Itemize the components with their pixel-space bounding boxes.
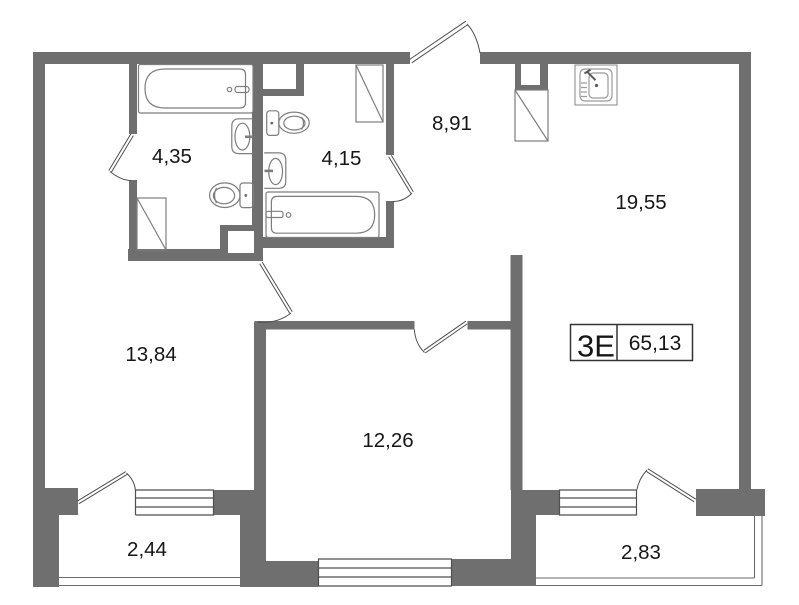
svg-text:2,83: 2,83 bbox=[621, 541, 661, 564]
svg-text:3Е: 3Е bbox=[577, 329, 615, 364]
svg-text:13,84: 13,84 bbox=[125, 343, 176, 366]
svg-text:8,91: 8,91 bbox=[432, 112, 472, 135]
svg-text:12,26: 12,26 bbox=[362, 429, 413, 452]
svg-text:4,15: 4,15 bbox=[322, 147, 362, 170]
svg-text:2,44: 2,44 bbox=[127, 538, 167, 561]
svg-text:19,55: 19,55 bbox=[615, 191, 666, 214]
svg-text:4,35: 4,35 bbox=[152, 145, 192, 168]
svg-text:65,13: 65,13 bbox=[629, 332, 682, 355]
